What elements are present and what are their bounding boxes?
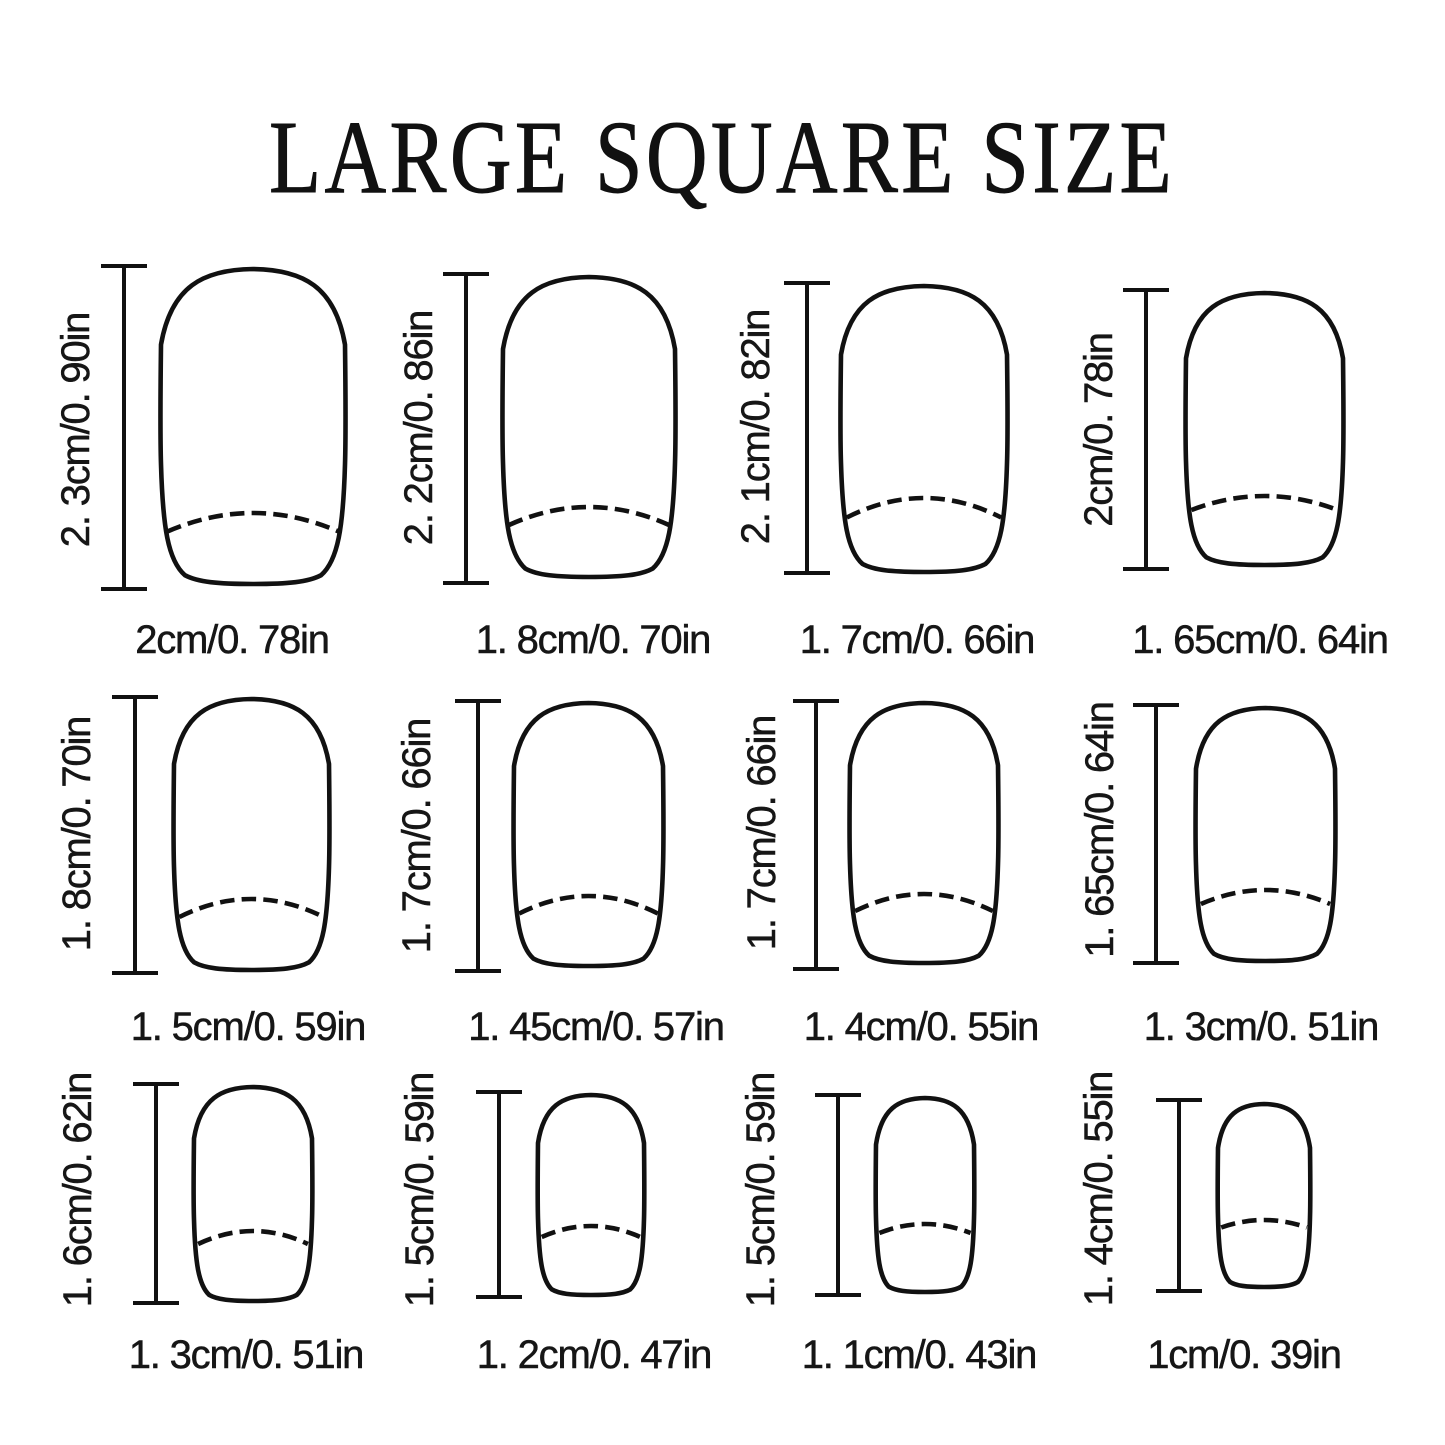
svg-text:1. 7cm/0. 66in: 1. 7cm/0. 66in (395, 719, 439, 953)
svg-text:1. 7cm/0. 66in: 1. 7cm/0. 66in (740, 716, 784, 950)
svg-text:1. 3cm/0. 51in: 1. 3cm/0. 51in (1144, 1005, 1378, 1049)
svg-text:LARGE SQUARE SIZE: LARGE SQUARE SIZE (269, 99, 1175, 215)
svg-text:2. 1cm/0. 82in: 2. 1cm/0. 82in (734, 310, 778, 544)
svg-text:1. 65cm/0. 64in: 1. 65cm/0. 64in (1078, 702, 1122, 958)
svg-text:1. 8cm/0. 70in: 1. 8cm/0. 70in (476, 618, 710, 662)
svg-text:1. 5cm/0. 59in: 1. 5cm/0. 59in (739, 1073, 783, 1307)
svg-text:1cm/0. 39in: 1cm/0. 39in (1147, 1333, 1341, 1377)
svg-text:1. 5cm/0. 59in: 1. 5cm/0. 59in (398, 1073, 442, 1307)
svg-text:2cm/0. 78in: 2cm/0. 78in (135, 618, 329, 662)
svg-text:1. 65cm/0. 64in: 1. 65cm/0. 64in (1132, 618, 1388, 662)
svg-text:1. 45cm/0. 57in: 1. 45cm/0. 57in (468, 1005, 724, 1049)
svg-text:1. 3cm/0. 51in: 1. 3cm/0. 51in (129, 1333, 363, 1377)
svg-text:1. 6cm/0. 62in: 1. 6cm/0. 62in (56, 1073, 100, 1307)
svg-text:1. 1cm/0. 43in: 1. 1cm/0. 43in (802, 1333, 1036, 1377)
svg-text:1. 4cm/0. 55in: 1. 4cm/0. 55in (804, 1005, 1038, 1049)
svg-text:1. 7cm/0. 66in: 1. 7cm/0. 66in (800, 618, 1034, 662)
svg-text:1. 2cm/0. 47in: 1. 2cm/0. 47in (477, 1333, 711, 1377)
svg-text:2cm/0. 78in: 2cm/0. 78in (1077, 333, 1121, 527)
svg-text:2. 2cm/0. 86in: 2. 2cm/0. 86in (397, 311, 441, 545)
svg-text:1. 5cm/0. 59in: 1. 5cm/0. 59in (131, 1005, 365, 1049)
svg-text:1. 4cm/0. 55in: 1. 4cm/0. 55in (1077, 1072, 1121, 1306)
svg-text:2. 3cm/0. 90in: 2. 3cm/0. 90in (54, 313, 98, 547)
svg-text:1. 8cm/0. 70in: 1. 8cm/0. 70in (55, 717, 99, 951)
